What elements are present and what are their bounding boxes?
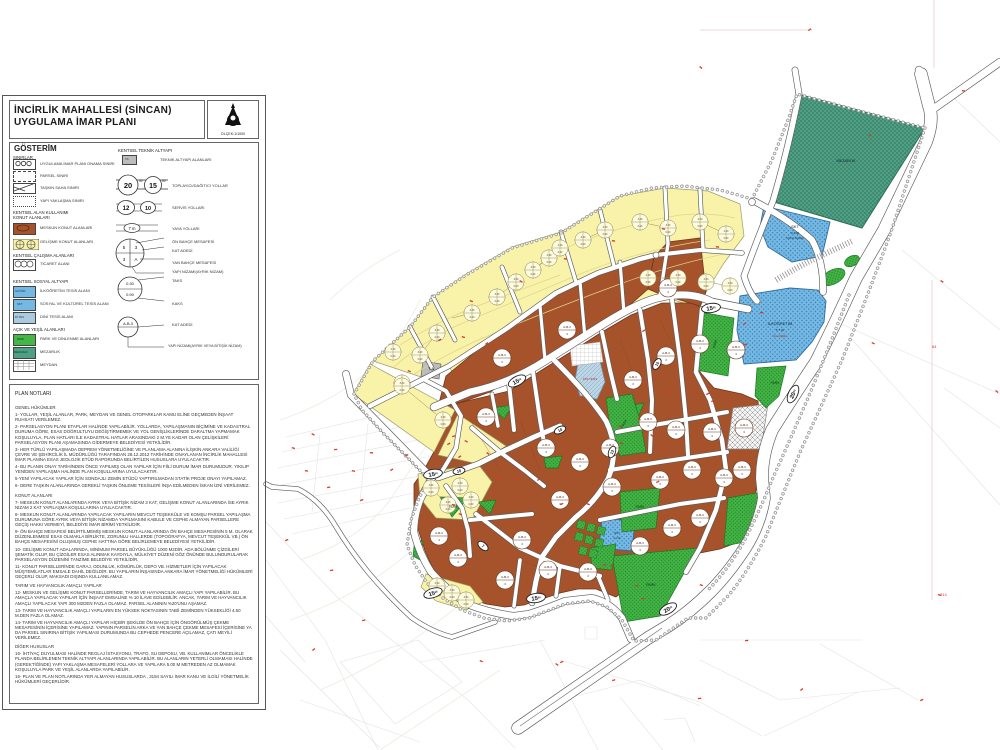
svg-text:A-B-3: A-B-3 [696,513,704,517]
svg-text:0.60: 0.60 [666,231,671,234]
svg-text:3.30: 3.30 [698,218,703,221]
svg-text:PARK: PARK [646,583,656,587]
svg-text:0.60: 0.60 [450,596,455,599]
svg-text:0.60: 0.60 [698,225,703,228]
svg-text:0.60: 0.60 [581,243,586,246]
svg-text:3.30: 3.30 [458,482,463,485]
svg-text:0.60: 0.60 [429,491,434,494]
svg-text:A-B-3: A-B-3 [608,482,616,486]
svg-text:DİNİ TESİS: DİNİ TESİS [583,376,598,381]
svg-text:A-B-3: A-B-3 [556,495,564,499]
svg-text:A-B-3: A-B-3 [584,567,592,571]
svg-text:0.60: 0.60 [514,285,519,288]
svg-text:0.60: 0.60 [400,389,405,392]
svg-text:0.60: 0.60 [728,289,733,292]
svg-text:3.30: 3.30 [441,416,446,419]
svg-text:A-B-3: A-B-3 [740,423,748,427]
svg-text:A-B-3: A-B-3 [688,465,696,469]
svg-text:A-B-3: A-B-3 [656,475,664,479]
svg-text:A-B-3: A-B-3 [544,565,552,569]
svg-text:0.60: 0.60 [391,355,396,358]
svg-text:3.30: 3.30 [400,382,405,385]
svg-text:3.30: 3.30 [464,596,469,599]
svg-text:Arıtma Tesisleri: Arıtma Tesisleri [786,236,804,240]
svg-text:3.30: 3.30 [495,293,500,296]
svg-text:A-B-3: A-B-3 [454,553,462,557]
svg-text:3.30: 3.30 [547,254,552,257]
svg-text:0.60: 0.60 [435,336,440,339]
svg-text:A-B-3: A-B-3 [482,412,490,416]
svg-text:0.60: 0.60 [469,503,474,506]
svg-text:A-B-3: A-B-3 [738,465,746,469]
svg-text:0.60: 0.60 [418,358,423,361]
svg-text:3.30: 3.30 [470,309,475,312]
svg-text:3.30: 3.30 [469,496,474,499]
svg-text:0.60: 0.60 [676,281,681,284]
svg-text:0.60: 0.60 [603,233,608,236]
svg-text:3.30: 3.30 [435,329,440,332]
svg-text:A-B-3: A-B-3 [720,473,728,477]
svg-text:0.60: 0.60 [441,423,446,426]
svg-text:3.30: 3.30 [666,224,671,227]
svg-text:0.60: 0.60 [547,261,552,264]
svg-text:A-B-3: A-B-3 [576,457,584,461]
svg-text:0.60: 0.60 [704,285,709,288]
svg-text:A-B-3: A-B-3 [732,345,740,349]
svg-text:A-B-3: A-B-3 [662,351,670,355]
svg-text:3.30: 3.30 [581,236,586,239]
svg-text:3.30: 3.30 [435,582,440,585]
svg-text:PARK: PARK [636,505,646,509]
svg-text:A-B-3: A-B-3 [644,417,652,421]
svg-text:0.60: 0.60 [646,281,651,284]
svg-text:0.60: 0.60 [558,251,563,254]
svg-text:A-B-3: A-B-3 [636,541,644,545]
svg-text:3.30: 3.30 [704,278,709,281]
svg-text:A-B-3: A-B-3 [668,523,676,527]
svg-text:0.60: 0.60 [638,225,643,228]
svg-text:SKT: SKT [791,224,799,229]
svg-text:Temel Eğitim: Temel Eğitim [773,334,788,338]
svg-text:3.30: 3.30 [450,589,455,592]
svg-text:PARK: PARK [449,505,458,509]
svg-text:0.60: 0.60 [458,489,463,492]
svg-text:3.30: 3.30 [558,244,563,247]
svg-text:MEZARLIK: MEZARLIK [837,159,856,163]
svg-text:A-B-3: A-B-3 [629,375,637,379]
svg-text:3.30: 3.30 [418,351,423,354]
svg-text:A-B-3: A-B-3 [563,325,571,329]
svg-text:A-B-3: A-B-3 [672,425,680,429]
svg-text:0.60: 0.60 [464,603,469,606]
svg-text:0.60: 0.60 [531,273,536,276]
svg-text:SKT: SKT [614,531,620,535]
svg-text:A-B-3: A-B-3 [542,443,550,447]
svg-text:0.60: 0.60 [495,300,500,303]
svg-text:A-B-3: A-B-3 [708,427,716,431]
svg-text:3.30: 3.30 [391,348,396,351]
svg-text:5.7.40: 5.7.40 [776,328,785,332]
svg-text:A-B-3: A-B-3 [501,575,509,579]
svg-text:84: 84 [932,344,937,349]
svg-text:0.60: 0.60 [470,316,475,319]
svg-text:A-B-3: A-B-3 [498,353,506,357]
svg-text:İLKÖĞRETİM: İLKÖĞRETİM [768,321,793,326]
svg-text:3.30: 3.30 [514,278,519,281]
svg-text:3.30: 3.30 [646,274,651,277]
svg-text:0.1.40: 0.1.40 [791,231,800,235]
svg-text:3.30: 3.30 [724,230,729,233]
svg-text:314: 314 [940,592,947,597]
svg-text:0.1.40: 0.1.40 [614,537,621,540]
svg-text:0.60: 0.60 [724,237,729,240]
svg-text:3.30: 3.30 [676,274,681,277]
svg-text:3.30: 3.30 [446,501,451,504]
svg-text:A-B-3: A-B-3 [435,531,443,535]
svg-text:3.30: 3.30 [603,226,608,229]
svg-text:T.A: T.A [428,366,434,371]
svg-text:3.30: 3.30 [531,266,536,269]
svg-text:3.30: 3.30 [638,218,643,221]
svg-text:A-B-3: A-B-3 [664,283,672,287]
svg-text:A-B-3: A-B-3 [696,339,704,343]
svg-text:A-B-3: A-B-3 [518,535,526,539]
svg-text:3.30: 3.30 [429,484,434,487]
svg-text:PARK: PARK [771,381,781,385]
svg-text:3.30: 3.30 [728,282,733,285]
